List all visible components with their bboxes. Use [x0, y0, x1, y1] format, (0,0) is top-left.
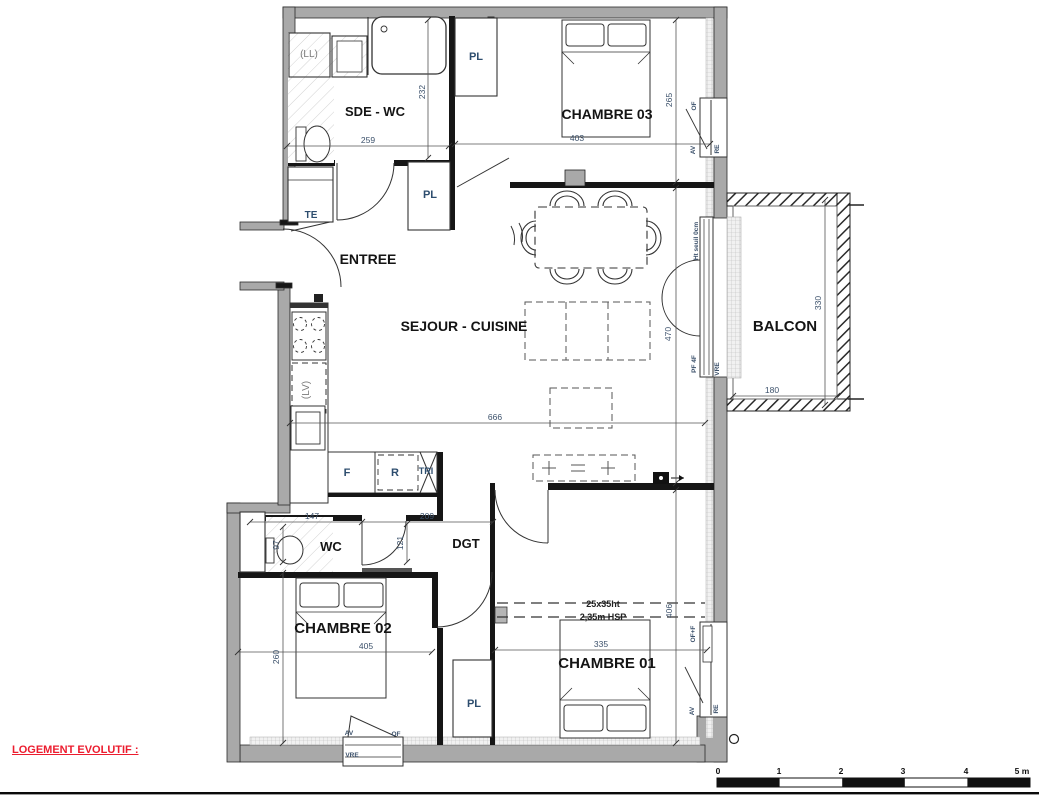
room-label-dgt: DGT [452, 536, 480, 551]
balcony-structure [727, 193, 864, 411]
fridge-label: F [344, 467, 351, 479]
scale-2: 2 [839, 766, 844, 776]
dim-335: 335 [594, 639, 608, 649]
balcony-door-vre: VRE [714, 362, 721, 376]
scale-4: 4 [964, 766, 969, 776]
dim-470: 470 [663, 327, 673, 341]
technical-closet-label: TE [305, 210, 318, 221]
dim-260: 260 [271, 650, 281, 664]
dim-180: 180 [765, 385, 779, 395]
dishwasher-label: (LV) [301, 381, 312, 399]
scale-0: 0 [716, 766, 721, 776]
ch02-window-av: AV [345, 730, 354, 737]
ch02-window-of: OF [391, 731, 400, 738]
closet-entree-label: PL [423, 189, 437, 201]
room-label-chambre03: CHAMBRE 03 [561, 106, 652, 122]
ch02-window-vre: VRE [345, 752, 359, 759]
ch01-window-av: AV [689, 706, 696, 715]
closet-top-label: PL [469, 51, 483, 63]
dim-232: 232 [417, 85, 427, 99]
room-label-wc: WC [320, 539, 342, 554]
ch03-window-re: RE [714, 144, 721, 154]
beam-size: 25x35ht [586, 599, 620, 609]
dim-265: 265 [664, 93, 674, 107]
dim-97: 97 [271, 540, 281, 550]
dim-330: 330 [813, 296, 823, 310]
dim-147: 147 [305, 511, 319, 521]
floorplan-drawing: SDE - WC CHAMBRE 03 ENTREE SEJOUR - CUIS… [0, 0, 1039, 800]
room-label-sejour: SEJOUR - CUISINE [401, 318, 528, 334]
dim-209: 209 [420, 511, 434, 521]
ch01-window-of: OF+F [690, 626, 697, 643]
opening-labels: OF AV RE Ht seuil 0cm PF 4F VRE OF+F AV … [345, 101, 721, 759]
scale-5m: 5 m [1015, 766, 1030, 776]
scale-3: 3 [901, 766, 906, 776]
page-bottom-rule [0, 792, 1039, 794]
floorplan-canvas: SDE - WC CHAMBRE 03 ENTREE SEJOUR - CUIS… [0, 0, 1039, 800]
scale-bar: 0 1 2 3 4 5 m [716, 766, 1030, 787]
dim-405: 405 [359, 641, 373, 651]
dim-121: 121 [395, 536, 405, 550]
room-label-balcon: BALCON [753, 318, 817, 335]
dim-403: 403 [570, 133, 584, 143]
washing-machine-label: (LL) [300, 49, 318, 60]
tri-label: TRI [419, 466, 434, 476]
room-label-chambre02: CHAMBRE 02 [294, 620, 392, 637]
balcony-door-type: PF 4F [691, 355, 698, 373]
room-label-chambre01: CHAMBRE 01 [558, 655, 656, 672]
evolutive-housing-note: LOGEMENT EVOLUTIF : [12, 744, 139, 756]
dim-259: 259 [361, 135, 375, 145]
ch03-window-av: AV [690, 145, 697, 154]
room-label-entree: ENTREE [340, 251, 397, 267]
dim-406: 406 [664, 604, 674, 618]
window-frames [343, 98, 727, 766]
beam-annotation: 25x35ht 2,35m HSP [580, 599, 627, 622]
range-label: R [391, 467, 399, 479]
dim-666: 666 [488, 412, 502, 422]
beam-hsp: 2,35m HSP [580, 612, 627, 622]
scale-1: 1 [777, 766, 782, 776]
ch01-window-re: RE [713, 704, 720, 714]
closet-bottom-label: PL [467, 698, 481, 710]
ch03-window-of: OF [691, 101, 698, 110]
room-label-sde-wc: SDE - WC [345, 104, 406, 119]
balcony-threshold-label: Ht seuil 0cm [693, 222, 700, 261]
